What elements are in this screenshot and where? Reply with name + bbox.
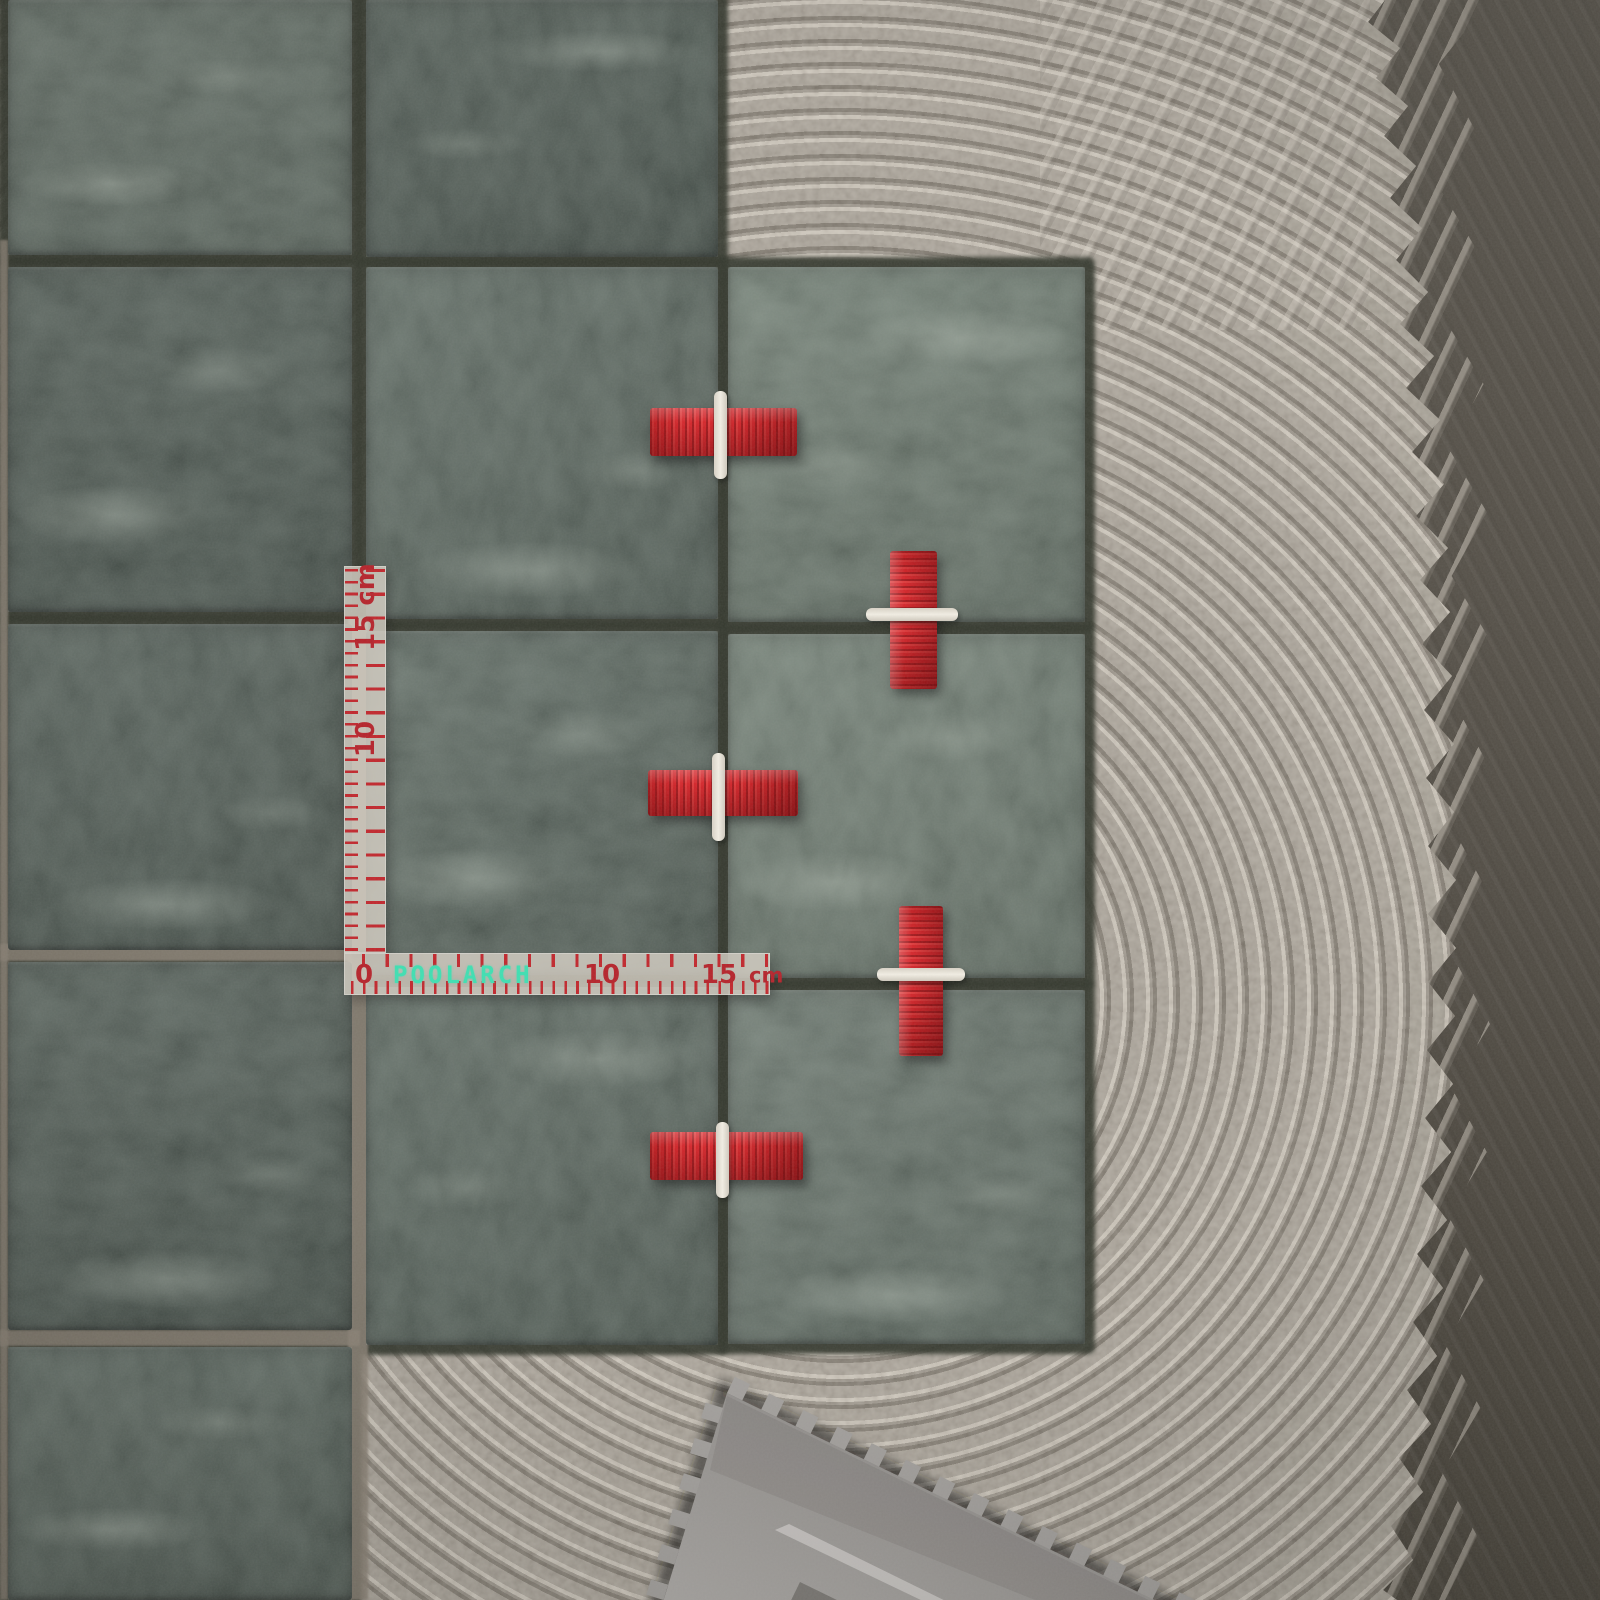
tile-installation-scene: 15 cm 10 0 POOLARCH 10 15 cm bbox=[0, 0, 1600, 1600]
photo-grain-overlay bbox=[0, 0, 1600, 1600]
